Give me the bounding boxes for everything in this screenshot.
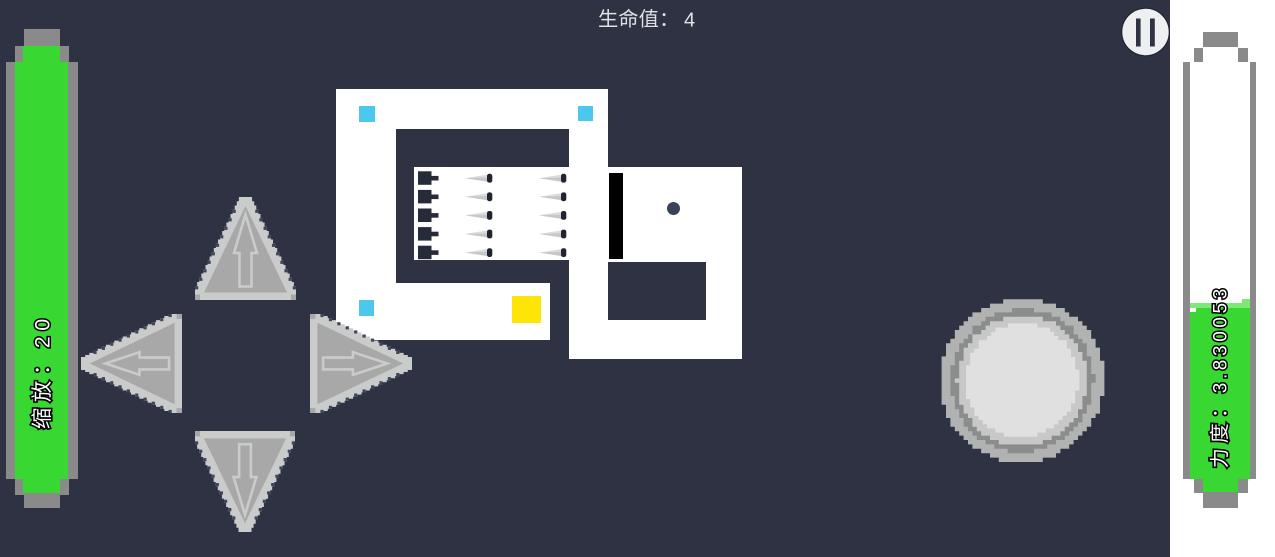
svg-text:8: 8 (1211, 360, 1232, 371)
svg-text:3: 3 (1211, 289, 1232, 300)
svg-text:3: 3 (1211, 383, 1232, 394)
svg-text:3: 3 (1211, 345, 1232, 356)
svg-text:0: 0 (1211, 331, 1232, 342)
svg-text:5: 5 (1211, 303, 1232, 314)
svg-text:2: 2 (30, 336, 54, 348)
svg-text:0: 0 (1211, 317, 1232, 328)
svg-text:4: 4 (684, 10, 695, 32)
svg-text:0: 0 (30, 319, 54, 331)
svg-text:.: . (1211, 374, 1232, 379)
